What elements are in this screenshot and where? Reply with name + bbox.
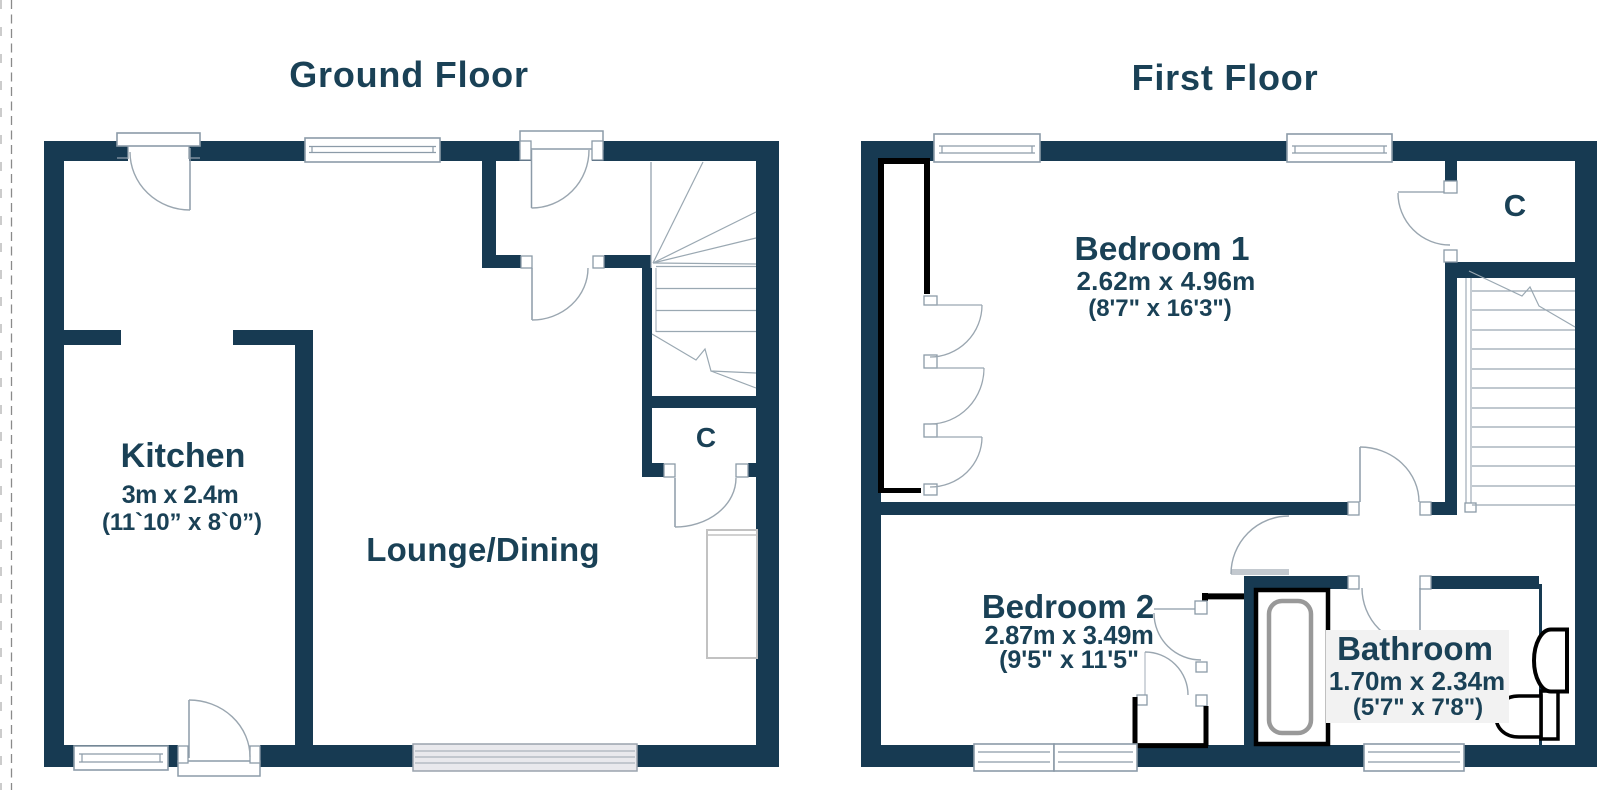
svg-text:(11`10” x 8`0”): (11`10” x 8`0”)	[102, 509, 262, 536]
svg-text:Ground Floor: Ground Floor	[289, 54, 529, 95]
svg-text:Kitchen: Kitchen	[121, 437, 246, 475]
svg-text:Bedroom 1: Bedroom 1	[1075, 231, 1250, 268]
svg-text:(9'5" x 11'5": (9'5" x 11'5"	[999, 646, 1139, 674]
svg-text:C: C	[1504, 188, 1526, 223]
svg-text:(8'7" x 16'3"): (8'7" x 16'3")	[1088, 295, 1232, 322]
svg-text:3m x 2.4m: 3m x 2.4m	[122, 481, 238, 509]
svg-text:1.70m x 2.34m: 1.70m x 2.34m	[1329, 666, 1505, 696]
svg-text:Lounge/Dining: Lounge/Dining	[366, 531, 600, 568]
svg-text:(5'7" x 7'8"): (5'7" x 7'8")	[1353, 694, 1483, 721]
svg-text:First Floor: First Floor	[1132, 57, 1319, 98]
svg-text:C: C	[696, 422, 716, 453]
svg-text:Bedroom 2: Bedroom 2	[982, 588, 1154, 625]
svg-text:Bathroom: Bathroom	[1337, 630, 1493, 667]
svg-text:2.62m x 4.96m: 2.62m x 4.96m	[1077, 266, 1256, 296]
